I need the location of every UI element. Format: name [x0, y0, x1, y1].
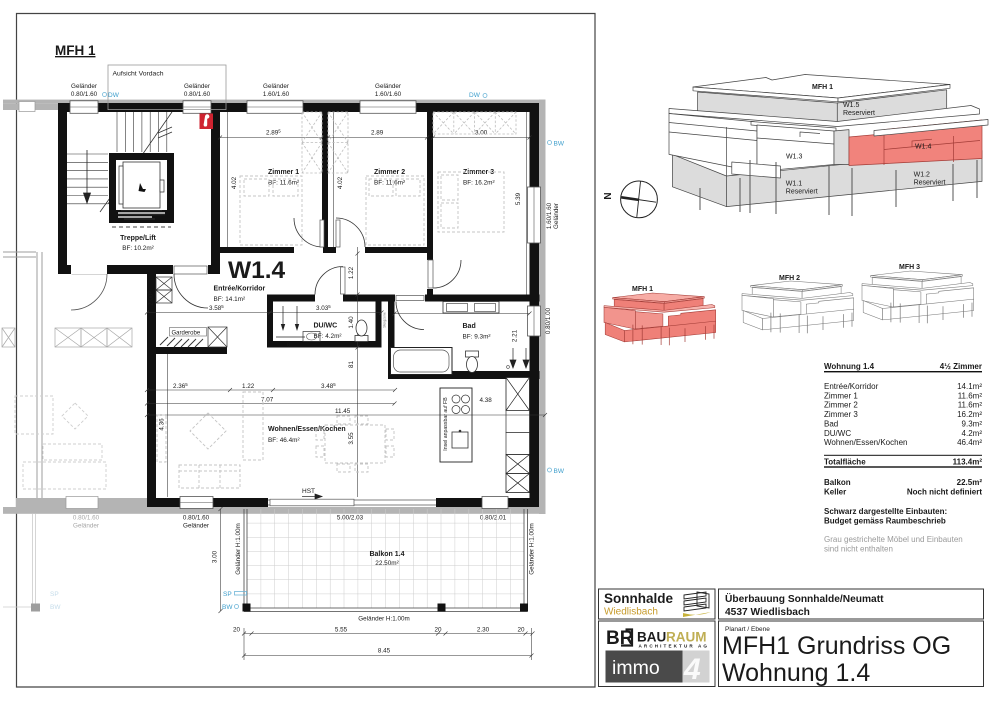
svg-text:1.22: 1.22 — [348, 266, 355, 279]
svg-text:4.02: 4.02 — [337, 176, 344, 189]
svg-text:Wohnung 1.4: Wohnung 1.4 — [824, 362, 875, 371]
svg-text:9.3m²: 9.3m² — [962, 419, 983, 428]
svg-text:46.4m²: 46.4m² — [957, 438, 982, 447]
svg-text:DW: DW — [469, 92, 481, 99]
svg-text:DW: DW — [108, 92, 120, 99]
svg-text:Geländer: Geländer — [73, 523, 99, 530]
svg-text:DU/WC: DU/WC — [314, 323, 338, 330]
svg-text:4: 4 — [683, 653, 701, 686]
svg-text:Überbauung Sonnhalde/Neumatt: Überbauung Sonnhalde/Neumatt — [725, 592, 884, 605]
svg-text:Wohnen/Essen/Kochen: Wohnen/Essen/Kochen — [268, 426, 346, 433]
svg-text:Geländer H:1.00m: Geländer H:1.00m — [529, 523, 536, 574]
svg-text:4.2m²: 4.2m² — [962, 429, 983, 438]
svg-text:Balkon: Balkon — [824, 478, 851, 487]
svg-text:BF: 14.1m²: BF: 14.1m² — [214, 296, 246, 303]
svg-text:Zimmer 2: Zimmer 2 — [374, 169, 405, 176]
svg-text:BF: 10.2m²: BF: 10.2m² — [122, 245, 154, 252]
svg-text:Reserviert: Reserviert — [786, 189, 818, 196]
svg-text:0.80/1.60: 0.80/1.60 — [184, 91, 211, 98]
svg-text:5.00/2.03: 5.00/2.03 — [337, 515, 364, 522]
svg-text:Wiedlisbach: Wiedlisbach — [604, 607, 658, 618]
svg-text:2.21: 2.21 — [512, 329, 519, 342]
svg-text:MFH 3: MFH 3 — [899, 264, 920, 271]
svg-text:22.50m²: 22.50m² — [375, 560, 398, 567]
svg-text:1.22: 1.22 — [242, 383, 255, 390]
svg-text:8: 8 — [287, 343, 290, 349]
svg-text:Geländer: Geländer — [263, 83, 289, 90]
svg-text:BF: 9.3m²: BF: 9.3m² — [463, 334, 491, 341]
svg-text:Zimmer 1: Zimmer 1 — [824, 391, 858, 400]
svg-text:BW: BW — [554, 468, 565, 475]
svg-text:Zimmer 2: Zimmer 2 — [824, 401, 858, 410]
svg-text:1.60/1.60: 1.60/1.60 — [375, 91, 402, 98]
svg-text:Wohnen/Essen/Kochen: Wohnen/Essen/Kochen — [824, 438, 907, 447]
svg-text:0.80/1.00: 0.80/1.00 — [545, 307, 552, 334]
svg-text:Geländer: Geländer — [71, 83, 97, 90]
svg-text:4537 Wiedlisbach: 4537 Wiedlisbach — [725, 607, 810, 618]
svg-text:MFH 1: MFH 1 — [812, 84, 833, 91]
svg-text:BW: BW — [222, 604, 233, 611]
svg-text:4.36: 4.36 — [159, 418, 166, 431]
svg-text:Wohnung 1.4: Wohnung 1.4 — [722, 659, 870, 687]
svg-text:sind nicht enthalten: sind nicht enthalten — [824, 544, 893, 553]
svg-text:BF: 11.6m²: BF: 11.6m² — [374, 180, 405, 187]
svg-text:16.2m²: 16.2m² — [957, 410, 982, 419]
svg-text:Bad: Bad — [463, 323, 476, 330]
svg-text:Bad: Bad — [824, 419, 838, 428]
svg-text:0.80/1.60: 0.80/1.60 — [183, 515, 210, 522]
svg-text:Zimmer 3: Zimmer 3 — [824, 410, 858, 419]
svg-text:0.80/2.01: 0.80/2.01 — [480, 515, 507, 522]
svg-text:Totalfläche: Totalfläche — [824, 458, 866, 467]
svg-text:Treppe/Lift: Treppe/Lift — [120, 235, 156, 242]
svg-text:BW: BW — [554, 141, 565, 148]
svg-text:14.1m²: 14.1m² — [957, 382, 982, 391]
svg-text:SP: SP — [223, 591, 232, 598]
svg-text:4½ Zimmer: 4½ Zimmer — [940, 362, 982, 371]
svg-text:113.4m²: 113.4m² — [953, 458, 983, 467]
svg-text:Entrée/Korridor: Entrée/Korridor — [214, 286, 266, 293]
svg-text:2.89: 2.89 — [371, 130, 384, 137]
svg-text:MFH 1: MFH 1 — [632, 286, 653, 293]
svg-text:Zimmer 1: Zimmer 1 — [268, 169, 299, 176]
svg-text:3.00: 3.00 — [212, 550, 219, 563]
svg-text:Keller: Keller — [824, 487, 846, 496]
svg-text:Sonnhalde: Sonnhalde — [604, 591, 673, 606]
svg-text:1.60/1.60: 1.60/1.60 — [263, 91, 290, 98]
svg-text:W1.3: W1.3 — [786, 154, 802, 161]
svg-text:BAU: BAU — [637, 630, 666, 645]
svg-text:Entrée/Korridor: Entrée/Korridor — [824, 382, 879, 391]
svg-text:Schwarz dargestellte Einbauten: Schwarz dargestellte Einbauten: — [824, 507, 947, 516]
svg-text:2.30: 2.30 — [477, 627, 490, 634]
svg-text:BF: 16.2m²: BF: 16.2m² — [463, 180, 495, 187]
svg-text:Budget gemäss Raumbeschrieb: Budget gemäss Raumbeschrieb — [824, 516, 946, 525]
svg-text:20: 20 — [434, 627, 442, 634]
svg-text:20: 20 — [517, 627, 525, 634]
svg-text:N: N — [603, 192, 614, 199]
svg-text:Geländer: Geländer — [553, 203, 560, 229]
svg-text:Grau gestrichelte Möbel und Ei: Grau gestrichelte Möbel und Einbauten — [824, 535, 963, 544]
svg-text:MFH 1: MFH 1 — [55, 43, 96, 58]
svg-text:Reserviert: Reserviert — [914, 180, 946, 187]
svg-text:Steigzone: Steigzone — [383, 312, 387, 328]
svg-text:0.80/1.60: 0.80/1.60 — [71, 91, 98, 98]
svg-text:Insel anpassbar auf FB: Insel anpassbar auf FB — [443, 397, 449, 451]
svg-text:BF: 4.2m²: BF: 4.2m² — [314, 333, 342, 340]
svg-text:1.40: 1.40 — [348, 316, 355, 329]
svg-text:Noch nicht definiert: Noch nicht definiert — [907, 487, 982, 496]
svg-text:Geländer: Geländer — [183, 523, 209, 530]
svg-text:BF: 46.4m²: BF: 46.4m² — [268, 437, 300, 444]
svg-text:20: 20 — [233, 627, 241, 634]
svg-text:0.80/1.60: 0.80/1.60 — [73, 515, 100, 522]
svg-text:3.55: 3.55 — [348, 432, 355, 445]
svg-text:1.60/1.60: 1.60/1.60 — [546, 202, 553, 229]
svg-text:Aufsicht Vordach: Aufsicht Vordach — [113, 71, 164, 78]
svg-text:81: 81 — [348, 361, 355, 369]
svg-text:Geländer: Geländer — [184, 83, 210, 90]
svg-text:SP: SP — [50, 591, 59, 598]
svg-text:5.55: 5.55 — [335, 627, 348, 634]
svg-text:4.02: 4.02 — [231, 176, 238, 189]
svg-text:MFH 2: MFH 2 — [779, 275, 800, 282]
svg-text:W1.4: W1.4 — [915, 144, 931, 151]
svg-text:Geländer H:1.00m: Geländer H:1.00m — [358, 616, 409, 623]
svg-text:Balkon 1.4: Balkon 1.4 — [369, 551, 404, 558]
svg-text:11.45: 11.45 — [335, 408, 351, 415]
svg-text:HST: HST — [302, 488, 315, 495]
svg-text:11.6m²: 11.6m² — [958, 391, 983, 400]
svg-text:W1.1: W1.1 — [786, 181, 802, 188]
svg-text:Reserviert: Reserviert — [843, 110, 875, 117]
svg-text:RAUM: RAUM — [666, 630, 707, 645]
svg-text:Garderobe: Garderobe — [172, 330, 201, 336]
svg-text:11.6m²: 11.6m² — [958, 401, 983, 410]
svg-text:8.45: 8.45 — [378, 648, 391, 655]
svg-text:22.5m²: 22.5m² — [957, 478, 983, 487]
svg-text:W1.5: W1.5 — [843, 102, 859, 109]
svg-text:4.38: 4.38 — [480, 397, 493, 404]
svg-text:BW: BW — [50, 604, 61, 611]
svg-text:MFH1 Grundriss OG: MFH1 Grundriss OG — [722, 632, 951, 660]
svg-text:Geländer: Geländer — [375, 83, 401, 90]
svg-text:5.39: 5.39 — [515, 192, 522, 205]
svg-text:W1.4: W1.4 — [228, 257, 286, 284]
svg-text:Geländer H:1.00m: Geländer H:1.00m — [235, 523, 242, 574]
svg-text:W1.2: W1.2 — [914, 172, 930, 179]
svg-text:DU/WC: DU/WC — [824, 429, 851, 438]
svg-text:ARCHITEKTUR AG: ARCHITEKTUR AG — [639, 644, 710, 649]
svg-text:immo: immo — [612, 657, 660, 679]
svg-text:Zimmer 3: Zimmer 3 — [463, 169, 494, 176]
svg-text:3.00: 3.00 — [475, 130, 488, 137]
